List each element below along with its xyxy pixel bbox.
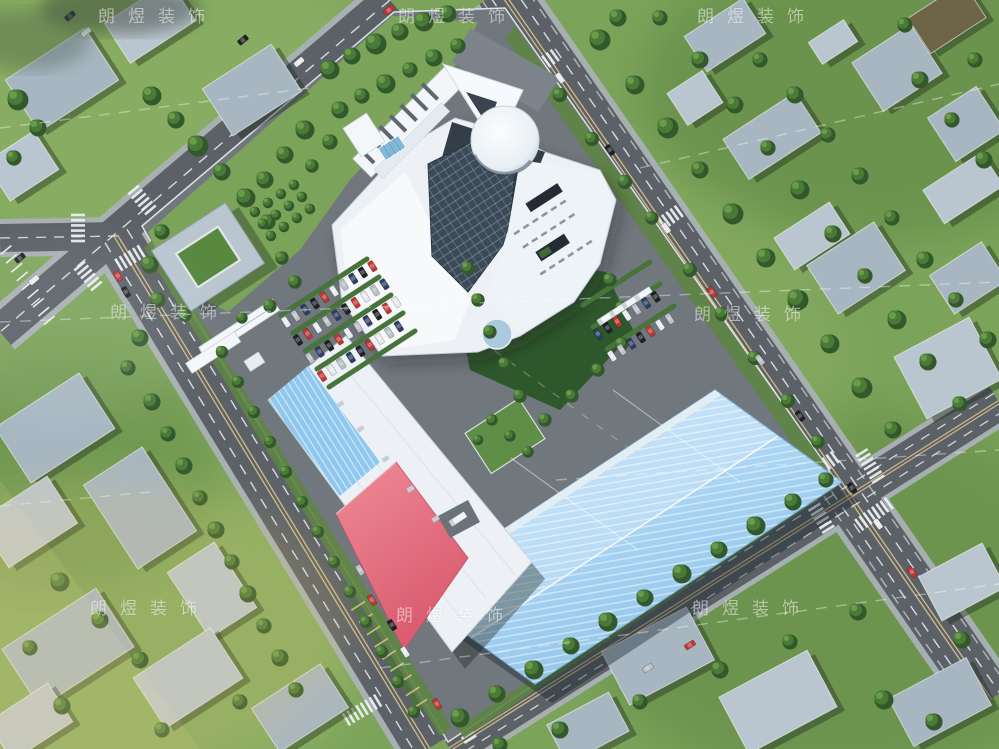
tree — [782, 634, 797, 649]
tree — [824, 225, 841, 242]
tree — [296, 121, 315, 140]
tree — [264, 436, 276, 448]
tree — [250, 207, 260, 217]
tree — [525, 661, 544, 680]
tree — [276, 146, 293, 163]
tree — [188, 136, 209, 157]
tree — [788, 290, 809, 311]
tree — [585, 132, 599, 146]
tree — [331, 101, 348, 118]
tree — [450, 38, 465, 53]
tree — [439, 5, 456, 22]
tree — [328, 556, 340, 568]
tree — [263, 198, 273, 208]
tree — [279, 222, 289, 232]
tree — [284, 201, 294, 211]
tree — [483, 325, 496, 338]
tree — [691, 51, 708, 68]
tree — [673, 565, 692, 584]
tree — [498, 357, 511, 370]
tree — [849, 603, 866, 620]
tree — [305, 159, 318, 172]
tree — [636, 589, 653, 606]
tree — [711, 661, 728, 678]
tree — [979, 331, 996, 348]
tree — [6, 150, 21, 165]
tree — [425, 49, 442, 66]
tree — [344, 586, 356, 598]
tree — [948, 292, 963, 307]
tree — [312, 526, 324, 538]
tree — [248, 406, 260, 418]
tree — [451, 709, 470, 728]
tree — [551, 721, 568, 738]
tree — [143, 87, 162, 106]
tree — [322, 134, 337, 149]
tree — [791, 181, 810, 200]
tree — [645, 211, 658, 224]
tree — [408, 706, 420, 718]
tree — [752, 52, 767, 67]
tree — [232, 376, 244, 388]
tree — [781, 394, 795, 408]
tree — [821, 335, 840, 354]
tree — [402, 62, 417, 77]
tree — [591, 363, 604, 376]
tree — [562, 637, 579, 654]
tree — [297, 192, 307, 202]
tree — [857, 268, 872, 283]
tree — [944, 112, 959, 127]
tree — [953, 631, 970, 648]
tree — [292, 213, 302, 223]
tree — [216, 346, 228, 358]
tree — [538, 413, 551, 426]
tree — [237, 189, 256, 208]
tree — [236, 312, 247, 323]
tree — [888, 311, 907, 330]
tree — [376, 646, 388, 658]
tree — [897, 17, 912, 32]
tree — [820, 127, 835, 142]
scene-canvas — [0, 0, 999, 749]
tree — [658, 118, 679, 139]
tree — [952, 396, 967, 411]
tree — [513, 389, 526, 402]
tree — [599, 613, 618, 632]
tree — [683, 263, 697, 277]
tree — [258, 219, 268, 229]
tree — [366, 34, 387, 55]
tree — [305, 204, 315, 214]
tree — [632, 694, 647, 709]
tree — [975, 151, 992, 168]
tree — [266, 231, 276, 241]
tree — [392, 676, 404, 688]
tree — [852, 378, 873, 399]
tree — [590, 30, 611, 51]
tree — [884, 421, 901, 438]
tree — [154, 224, 169, 239]
tree — [321, 61, 340, 80]
tree — [747, 517, 766, 536]
tree — [553, 88, 567, 102]
tree — [289, 180, 299, 190]
tree — [167, 111, 184, 128]
tree — [565, 389, 578, 402]
tree — [726, 96, 743, 113]
tree — [784, 493, 801, 510]
tree — [256, 171, 273, 188]
tree — [276, 189, 286, 199]
tree — [652, 10, 667, 25]
tree — [875, 691, 894, 710]
tree — [925, 713, 942, 730]
tree — [296, 496, 308, 508]
tree — [916, 251, 933, 268]
tree — [967, 52, 982, 67]
tree — [280, 466, 292, 478]
tree — [760, 140, 775, 155]
tree — [911, 71, 928, 88]
tree — [8, 90, 29, 111]
tree — [275, 251, 288, 264]
tree — [160, 426, 175, 441]
tree — [473, 435, 483, 445]
tree — [715, 307, 729, 321]
tree — [343, 47, 360, 64]
tree — [288, 275, 301, 288]
tree — [471, 293, 484, 306]
tree — [757, 249, 776, 268]
tree — [522, 446, 533, 457]
tree — [884, 210, 899, 225]
tree — [710, 541, 727, 558]
tree — [691, 161, 708, 178]
tree — [504, 430, 515, 441]
tree — [851, 167, 868, 184]
tree — [811, 435, 824, 448]
tree — [486, 414, 497, 425]
tree — [213, 163, 230, 180]
aerial-site-rendering: 朗煜装饰 朗煜装饰 朗煜装饰 朗煜装饰 朗煜装饰 朗煜装饰 朗煜装饰 朗煜装饰 — [0, 0, 999, 749]
tree — [618, 175, 632, 189]
tree — [603, 273, 616, 286]
tree — [488, 685, 505, 702]
tree — [786, 86, 803, 103]
tree — [415, 13, 434, 32]
tree — [377, 75, 396, 94]
tree — [626, 76, 645, 95]
tree — [461, 261, 474, 274]
tree — [609, 9, 626, 26]
tree — [360, 616, 372, 628]
tree — [723, 204, 744, 225]
tree — [354, 88, 369, 103]
tree — [175, 457, 192, 474]
tree — [271, 210, 281, 220]
tree — [391, 23, 408, 40]
tree — [818, 472, 833, 487]
tree — [919, 353, 936, 370]
